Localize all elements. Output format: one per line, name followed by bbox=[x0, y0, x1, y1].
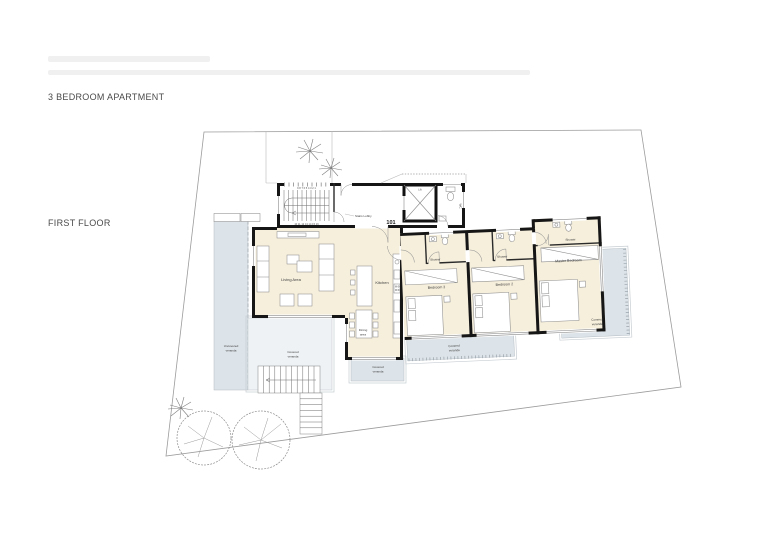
covered-veranda-bedrooms-label2: veranda bbox=[449, 348, 460, 352]
bedroom3-label: Bedroom 3 bbox=[428, 285, 446, 290]
floor-plan-page: 3 BEDROOM APARTMENT FIRST FLOOR bbox=[0, 0, 768, 543]
kitchen-label: Kitchen bbox=[375, 280, 388, 285]
uncovered-veranda-label2: veranda bbox=[226, 349, 237, 353]
lift-label: Lift bbox=[418, 188, 422, 192]
dining-area-label: Dining bbox=[359, 328, 368, 332]
living-area-label: Living Area bbox=[281, 277, 302, 282]
covered-veranda-master-label2: veranda bbox=[592, 322, 603, 326]
wc-label: WC bbox=[459, 204, 463, 210]
bedroom2-label: Bedroom 2 bbox=[496, 282, 514, 287]
unit-number: 101 bbox=[386, 220, 395, 226]
dining-area-label2: area bbox=[360, 333, 366, 337]
stair-numbers-top: 9 8 7 6 5 4 3 2 1 bbox=[297, 186, 316, 190]
covered-veranda-dining-label2: veranda bbox=[373, 370, 384, 374]
stairs-lobby-label: Stairs Lobby bbox=[355, 214, 372, 218]
covered-veranda-dining-label: Covered bbox=[372, 365, 384, 369]
shower-label-bedroom2: Shower bbox=[497, 254, 507, 258]
uncovered-veranda-label: Uncovered bbox=[224, 344, 239, 348]
shower-label-bedroom3: Shower bbox=[430, 257, 440, 261]
floor-plan-drawing: Shower Shower Shower Bedroom 3 Bedroom 2… bbox=[0, 0, 768, 543]
stair-numbers-bottom: 10 11 12 13 14 15 16 bbox=[294, 222, 319, 226]
covered-veranda-west-label2: veranda bbox=[288, 355, 299, 359]
covered-veranda-west-label: Covered bbox=[287, 350, 299, 354]
shower-label-master: Shower bbox=[565, 237, 575, 241]
